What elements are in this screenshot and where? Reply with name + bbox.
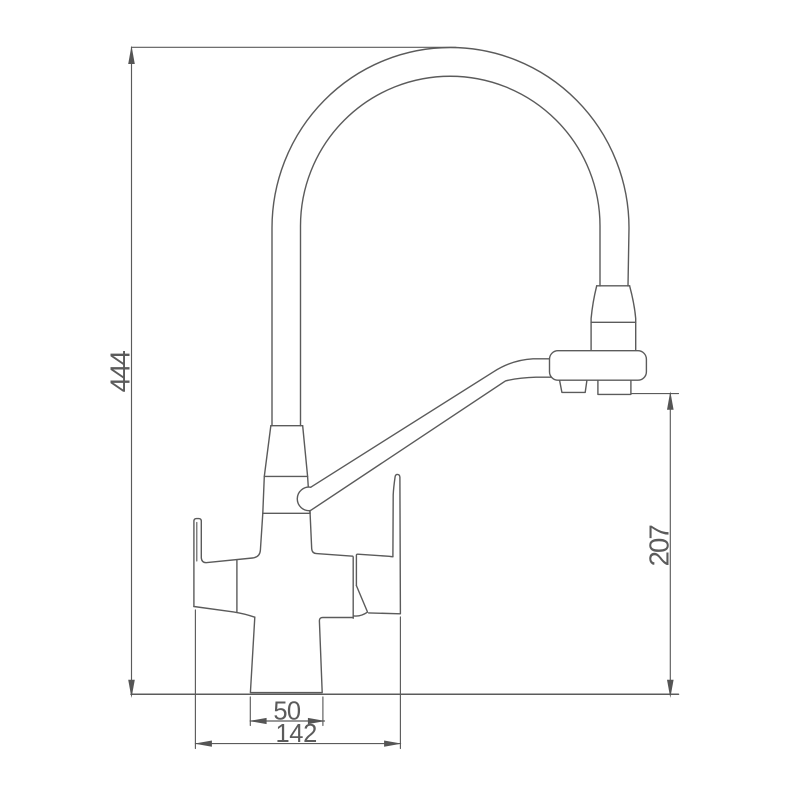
svg-text:207: 207 <box>644 525 675 566</box>
svg-text:142: 142 <box>276 720 317 748</box>
svg-text:444: 444 <box>105 350 136 392</box>
